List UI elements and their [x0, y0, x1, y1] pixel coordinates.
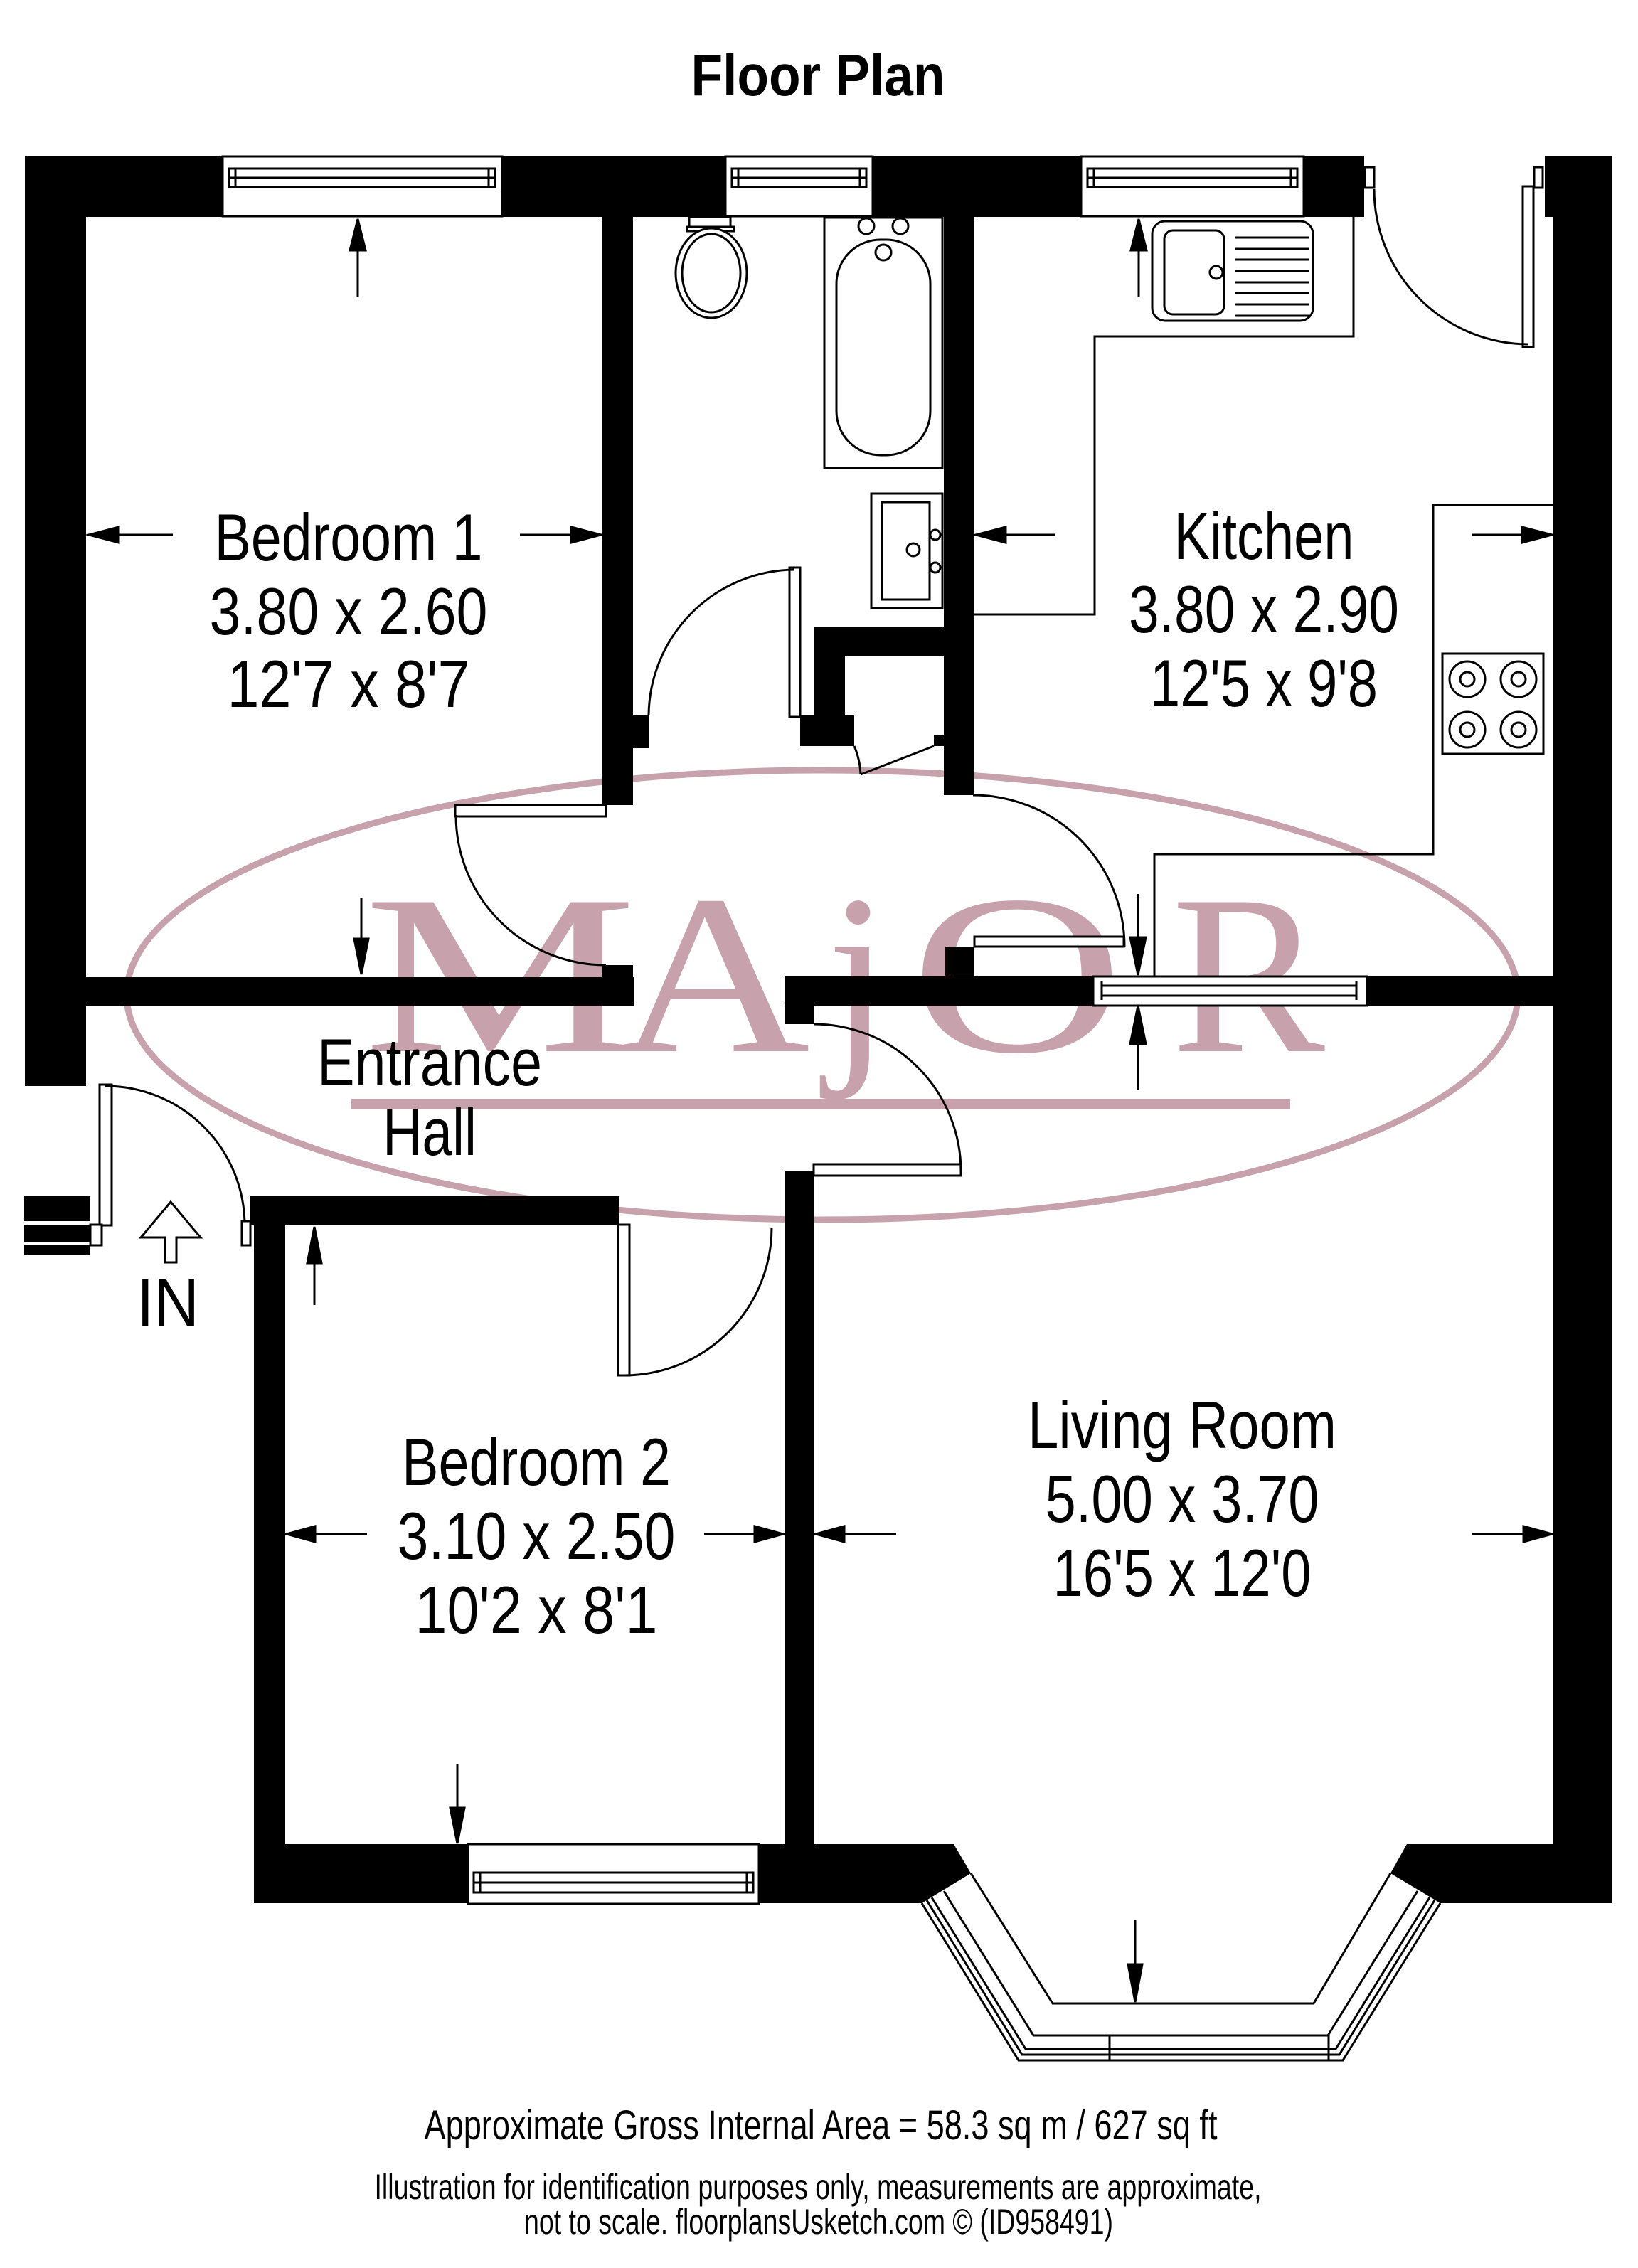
svg-text:12'5 x 9'8: 12'5 x 9'8	[1150, 646, 1378, 720]
svg-text:Bedroom 2: Bedroom 2	[402, 1425, 671, 1499]
svg-text:10'2 x 8'1: 10'2 x 8'1	[415, 1572, 658, 1647]
svg-text:Illustration for identificatio: Illustration for identification purposes…	[375, 2167, 1262, 2207]
svg-text:Kitchen: Kitchen	[1174, 499, 1354, 573]
svg-text:j: j	[819, 849, 890, 1101]
svg-text:A: A	[616, 849, 810, 1101]
svg-text:3.80 x 2.60: 3.80 x 2.60	[210, 574, 488, 649]
svg-text:Approximate Gross Internal Are: Approximate Gross Internal Area = 58.3 s…	[425, 2102, 1218, 2149]
svg-text:R: R	[1171, 849, 1326, 1101]
svg-text:IN: IN	[137, 1265, 199, 1341]
svg-text:not to scale. floorplansUsketc: not to scale. floorplansUsketch.com © (I…	[524, 2202, 1113, 2242]
svg-text:16'5 x 12'0: 16'5 x 12'0	[1053, 1535, 1312, 1610]
svg-text:Entrance: Entrance	[317, 1025, 542, 1100]
svg-text:Living Room: Living Room	[1028, 1388, 1336, 1462]
svg-text:12'7 x 8'7: 12'7 x 8'7	[228, 646, 470, 721]
svg-text:5.00 x 3.70: 5.00 x 3.70	[1046, 1462, 1319, 1536]
svg-text:Floor Plan: Floor Plan	[691, 43, 945, 108]
svg-text:3.80 x 2.90: 3.80 x 2.90	[1129, 572, 1399, 646]
svg-text:Hall: Hall	[383, 1095, 477, 1169]
svg-text:O: O	[910, 849, 1124, 1101]
svg-text:Bedroom 1: Bedroom 1	[215, 500, 483, 575]
svg-text:3.10 x 2.50: 3.10 x 2.50	[398, 1498, 676, 1573]
